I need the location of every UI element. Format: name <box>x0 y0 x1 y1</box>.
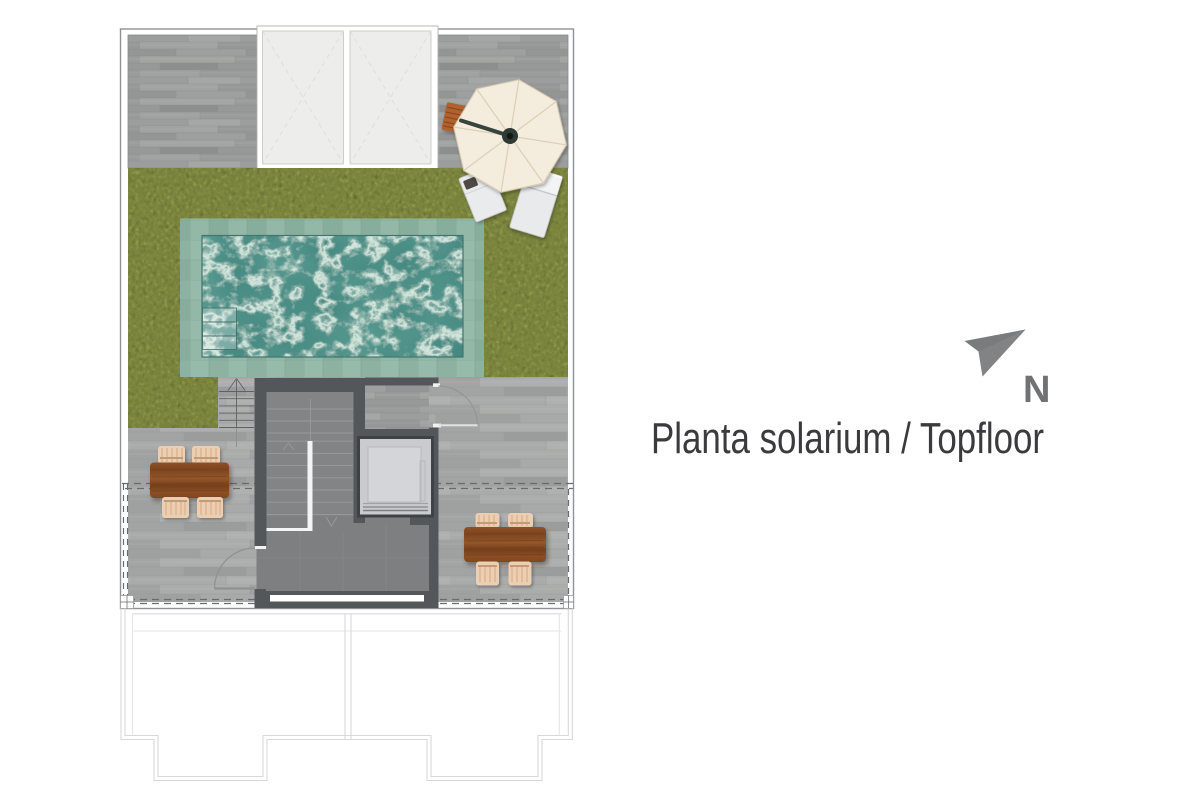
svg-text:Planta solarium / Topfloor: Planta solarium / Topfloor <box>651 414 1044 463</box>
svg-text:N: N <box>1023 369 1050 411</box>
